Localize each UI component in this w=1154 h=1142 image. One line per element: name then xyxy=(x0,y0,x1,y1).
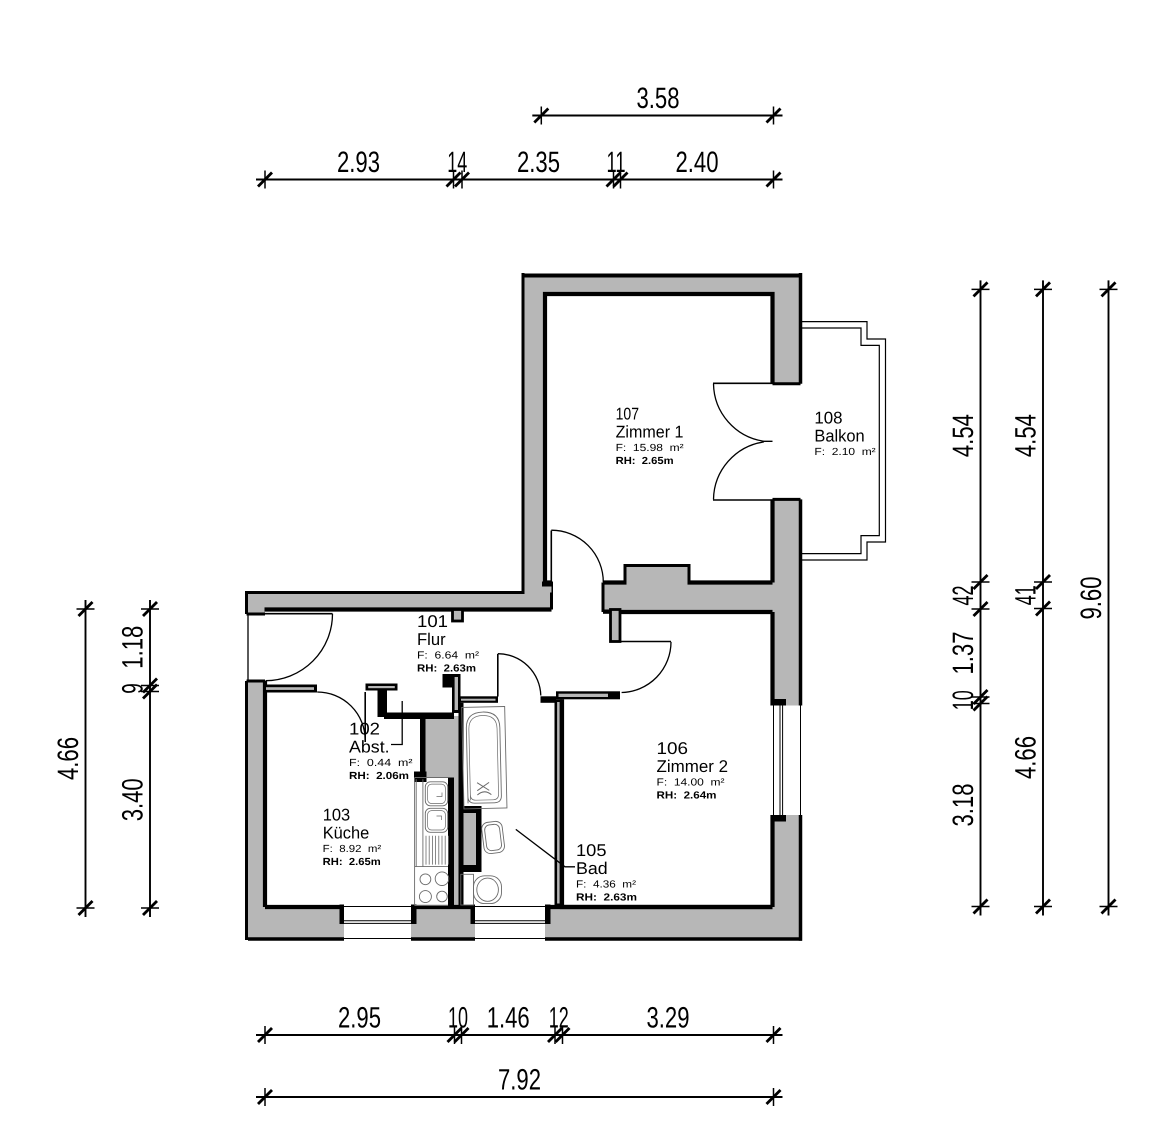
svg-text:10: 10 xyxy=(448,1001,468,1034)
svg-text:Balkon: Balkon xyxy=(814,427,864,446)
svg-text:2.40: 2.40 xyxy=(676,146,719,179)
svg-text:102: 102 xyxy=(349,719,380,738)
svg-text:12: 12 xyxy=(549,1001,569,1034)
svg-text:106: 106 xyxy=(657,739,689,758)
svg-text:7.92: 7.92 xyxy=(498,1063,541,1096)
svg-text:1.37: 1.37 xyxy=(947,632,980,675)
svg-text:1.18: 1.18 xyxy=(116,626,149,669)
svg-text:F: 6.64 m²: F: 6.64 m² xyxy=(417,651,480,662)
svg-text:41: 41 xyxy=(1009,585,1042,605)
svg-text:103: 103 xyxy=(323,806,351,825)
svg-text:3.18: 3.18 xyxy=(947,784,980,827)
svg-text:RH: 2.63m: RH: 2.63m xyxy=(576,893,637,904)
svg-text:4.66: 4.66 xyxy=(52,737,85,780)
svg-text:RH: 2.65m: RH: 2.65m xyxy=(616,456,674,467)
svg-text:3.40: 3.40 xyxy=(116,778,149,821)
svg-text:F: 0.44 m²: F: 0.44 m² xyxy=(349,758,413,769)
svg-text:101: 101 xyxy=(417,612,448,631)
svg-text:4.54: 4.54 xyxy=(947,414,980,457)
svg-text:RH: 2.65m: RH: 2.65m xyxy=(323,857,381,868)
svg-text:105: 105 xyxy=(576,841,607,860)
svg-text:3.29: 3.29 xyxy=(647,1001,690,1034)
svg-text:Flur: Flur xyxy=(417,630,446,649)
svg-text:Küche: Küche xyxy=(323,824,370,843)
svg-text:Abst.: Abst. xyxy=(349,737,390,756)
svg-text:1.46: 1.46 xyxy=(487,1001,530,1034)
svg-text:14: 14 xyxy=(447,146,467,179)
svg-text:RH: 2.63m: RH: 2.63m xyxy=(417,664,476,675)
svg-text:2.35: 2.35 xyxy=(517,146,560,179)
svg-text:Zimmer 2: Zimmer 2 xyxy=(657,757,729,776)
svg-text:F: 4.36 m²: F: 4.36 m² xyxy=(576,880,637,891)
svg-text:42: 42 xyxy=(947,586,980,606)
svg-text:10: 10 xyxy=(947,690,980,710)
svg-text:F: 8.92 m²: F: 8.92 m² xyxy=(323,844,382,855)
svg-text:9.60: 9.60 xyxy=(1075,577,1108,620)
svg-text:4.54: 4.54 xyxy=(1009,414,1042,457)
svg-text:2.95: 2.95 xyxy=(338,1001,381,1034)
svg-text:2.93: 2.93 xyxy=(337,146,380,179)
svg-text:11: 11 xyxy=(607,146,626,179)
svg-text:3.58: 3.58 xyxy=(637,82,680,115)
svg-text:9: 9 xyxy=(116,683,149,694)
svg-text:4.66: 4.66 xyxy=(1009,736,1042,779)
svg-text:RH: 2.64m: RH: 2.64m xyxy=(657,791,717,802)
svg-text:Bad: Bad xyxy=(576,859,608,878)
svg-text:108: 108 xyxy=(814,408,842,427)
svg-text:F: 2.10 m²: F: 2.10 m² xyxy=(814,447,876,458)
svg-text:Zimmer 1: Zimmer 1 xyxy=(616,423,684,442)
svg-text:RH: 2.06m: RH: 2.06m xyxy=(349,771,409,782)
svg-text:F: 14.00 m²: F: 14.00 m² xyxy=(657,778,726,789)
svg-text:F: 15.98 m²: F: 15.98 m² xyxy=(616,443,685,454)
svg-text:107: 107 xyxy=(616,405,639,424)
